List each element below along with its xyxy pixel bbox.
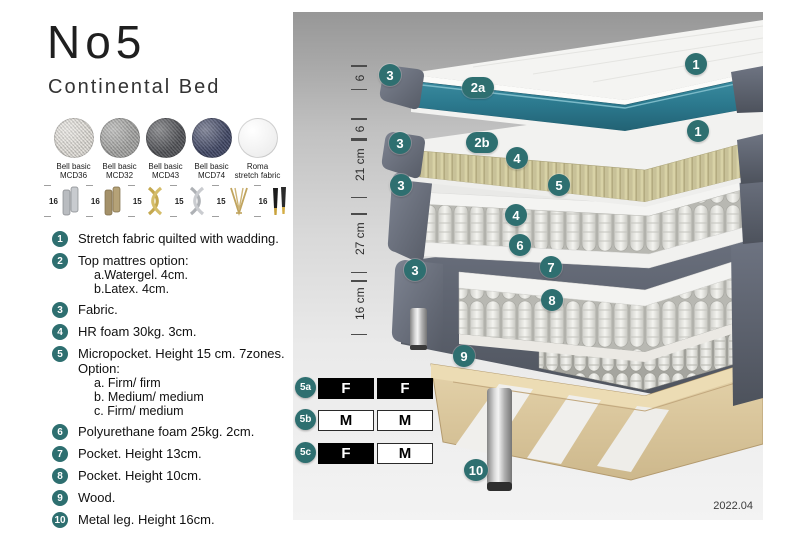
ruler-label: 6 xyxy=(353,66,367,90)
fabric-swatch-row: Bell basicMCD36 Bell basicMCD32 Bell bas… xyxy=(52,118,279,180)
list-item: 3 Fabric. xyxy=(52,302,308,318)
list-item-number: 3 xyxy=(52,302,68,318)
list-item: 10 Metal leg. Height 16cm. xyxy=(52,512,308,528)
list-item-text: Pocket. Height 10cm. xyxy=(78,468,202,484)
ruler-segment: 6 xyxy=(348,65,372,90)
fabric-code: MCD43 xyxy=(148,171,182,180)
list-item-number: 2 xyxy=(52,253,68,269)
callout-2a-watergel: 2a xyxy=(462,77,494,98)
leg-height: 15 xyxy=(133,197,142,206)
cylinder-brass-leg-icon xyxy=(102,186,124,216)
list-item: 5 Micropocket. Height 15 cm. 7zones. Opt… xyxy=(52,346,308,418)
firmness-cell: M xyxy=(377,443,433,464)
leg-option: 16 xyxy=(254,184,294,218)
list-item-text: Pocket. Height 13cm. xyxy=(78,446,202,462)
list-item: 8 Pocket. Height 10cm. xyxy=(52,468,308,484)
fabric-code: MCD32 xyxy=(102,171,136,180)
callout-1-top-fabric: 1 xyxy=(685,53,707,75)
leg-options-row: 16 16 15 15 xyxy=(44,184,293,218)
callout-6-polyurethane: 6 xyxy=(509,234,531,256)
list-item-subtext: b.Latex. 4cm. xyxy=(78,282,189,296)
fabric-swatch-circle xyxy=(192,118,232,158)
callout-3-top-mattress: 3 xyxy=(379,64,401,86)
firmness-cell: F xyxy=(377,378,433,399)
fabric-swatch: Romastretch fabric xyxy=(236,118,279,180)
list-item: 7 Pocket. Height 13cm. xyxy=(52,446,308,462)
callout-3-base-box: 3 xyxy=(404,259,426,281)
ruler-tick xyxy=(351,197,367,199)
ruler-tick xyxy=(351,334,367,336)
callout-8-pocket-10: 8 xyxy=(541,289,563,311)
firmness-cell: M xyxy=(318,410,374,431)
leg-height: 16 xyxy=(259,197,268,206)
list-item-number: 8 xyxy=(52,468,68,484)
firmness-cell: F xyxy=(318,378,374,399)
list-item-subtext: a.Watergel. 4cm. xyxy=(78,268,189,282)
list-item-text: Micropocket. Height 15 cm. 7zones. Optio… xyxy=(78,346,308,376)
ruler-tick xyxy=(351,89,367,91)
ruler-label: 27 cm xyxy=(353,231,367,255)
firmness-row-label: 5c xyxy=(295,442,316,463)
list-item-number: 7 xyxy=(52,446,68,462)
leg-height: 15 xyxy=(217,197,226,206)
ruler-tick xyxy=(351,272,367,274)
fabric-swatch: Bell basicMCD32 xyxy=(98,118,141,180)
page-title: No5 xyxy=(47,18,146,66)
fabric-code: MCD74 xyxy=(194,171,228,180)
list-item: 1 Stretch fabric quilted with wadding. xyxy=(52,231,308,247)
list-item-text: Metal leg. Height 16cm. xyxy=(78,512,215,528)
leg-height: 16 xyxy=(49,197,58,206)
cylinder-silver-leg-icon xyxy=(60,186,82,216)
callout-10-metal-leg: 10 xyxy=(464,459,488,481)
list-item: 6 Polyurethane foam 25kg. 2cm. xyxy=(52,424,308,440)
list-item: 9 Wood. xyxy=(52,490,308,506)
fabric-swatch-circle xyxy=(100,118,140,158)
callout-2b-latex: 2b xyxy=(466,132,498,153)
fabric-name: Bell basic xyxy=(148,162,182,171)
fabric-swatch: Bell basicMCD43 xyxy=(144,118,187,180)
twisted-cross-gold-leg-icon xyxy=(144,186,166,216)
version-stamp: 2022.04 xyxy=(713,500,753,512)
fabric-swatch: Bell basicMCD36 xyxy=(52,118,95,180)
firmness-cell: F xyxy=(318,443,374,464)
list-item-subtext: b. Medium/ medium xyxy=(78,390,308,404)
callout-3-micropocket-box: 3 xyxy=(390,174,412,196)
list-item: 2 Top mattres option: a.Watergel. 4cm. b… xyxy=(52,253,308,296)
top-mattress-layer xyxy=(380,20,763,136)
list-item-text: Top mattres option: xyxy=(78,253,189,268)
list-item-text: Polyurethane foam 25kg. 2cm. xyxy=(78,424,254,440)
leg-height: 15 xyxy=(175,197,184,206)
callout-1-mid-fabric: 1 xyxy=(687,120,709,142)
ruler-segment: 16 cm xyxy=(348,280,372,335)
leg-option: 16 xyxy=(44,184,86,218)
list-item-number: 1 xyxy=(52,231,68,247)
firmness-row-label: 5a xyxy=(295,377,316,398)
tapered-black-gold-leg-icon xyxy=(269,186,289,216)
list-item-number: 9 xyxy=(52,490,68,506)
callout-4-hr-foam-top: 4 xyxy=(506,147,528,169)
twisted-cross-silver-leg-icon xyxy=(186,186,208,216)
fabric-swatch-circle xyxy=(238,118,278,158)
fabric-code: MCD36 xyxy=(56,171,90,180)
list-item-text: Fabric. xyxy=(78,302,118,318)
fabric-code: stretch fabric xyxy=(235,171,281,180)
list-item-number: 4 xyxy=(52,324,68,340)
callout-5-micropocket: 5 xyxy=(548,174,570,196)
product-spec-sheet: No5 Continental Bed Bell basicMCD36 Bell… xyxy=(0,0,800,533)
list-item: 4 HR foam 30kg. 3cm. xyxy=(52,324,308,340)
list-item-subtext: a. Firm/ firm xyxy=(78,376,308,390)
firmness-row-label: 5b xyxy=(295,409,316,430)
list-item-number: 6 xyxy=(52,424,68,440)
leg-option: 16 xyxy=(86,184,128,218)
leg-height: 16 xyxy=(91,197,100,206)
fabric-swatch-circle xyxy=(146,118,186,158)
hairpin-gold-leg-icon xyxy=(228,186,250,216)
list-item-text: Stretch fabric quilted with wadding. xyxy=(78,231,279,247)
list-item-text: HR foam 30kg. 3cm. xyxy=(78,324,197,340)
list-item-text: Wood. xyxy=(78,490,115,506)
fabric-swatch-circle xyxy=(54,118,94,158)
fabric-name: Roma xyxy=(235,162,281,171)
ruler-label: 16 cm xyxy=(353,296,367,320)
page-subtitle: Continental Bed xyxy=(48,76,220,99)
callout-7-pocket-13: 7 xyxy=(540,256,562,278)
ruler-tick xyxy=(351,280,367,282)
firmness-cell: M xyxy=(377,410,433,431)
leg-option: 15 xyxy=(212,184,254,218)
list-item-number: 10 xyxy=(52,512,68,528)
ruler-segment: 21 cm xyxy=(348,139,372,198)
fabric-name: Bell basic xyxy=(194,162,228,171)
ruler-segment: 6 xyxy=(348,118,372,139)
callout-9-wood: 9 xyxy=(453,345,475,367)
leg-option: 15 xyxy=(170,184,212,218)
fabric-name: Bell basic xyxy=(102,162,136,171)
ruler-label: 21 cm xyxy=(353,157,367,181)
fabric-swatch: Bell basicMCD74 xyxy=(190,118,233,180)
ruler-tick xyxy=(351,213,367,215)
callout-3-latex-layer: 3 xyxy=(389,132,411,154)
diagram-panel: 6 6 21 cm 27 cm 16 cm 3 2a 1 3 2b 1 xyxy=(293,12,763,520)
ruler-segment: 27 cm xyxy=(348,213,372,273)
list-item-subtext: c. Firm/ medium xyxy=(78,404,308,418)
fabric-name: Bell basic xyxy=(56,162,90,171)
callout-4-hr-foam-bottom: 4 xyxy=(505,204,527,226)
list-item-number: 5 xyxy=(52,346,68,362)
spec-list: 1 Stretch fabric quilted with wadding. 2… xyxy=(52,231,308,533)
leg-option: 15 xyxy=(128,184,170,218)
ruler-tick xyxy=(351,139,367,141)
